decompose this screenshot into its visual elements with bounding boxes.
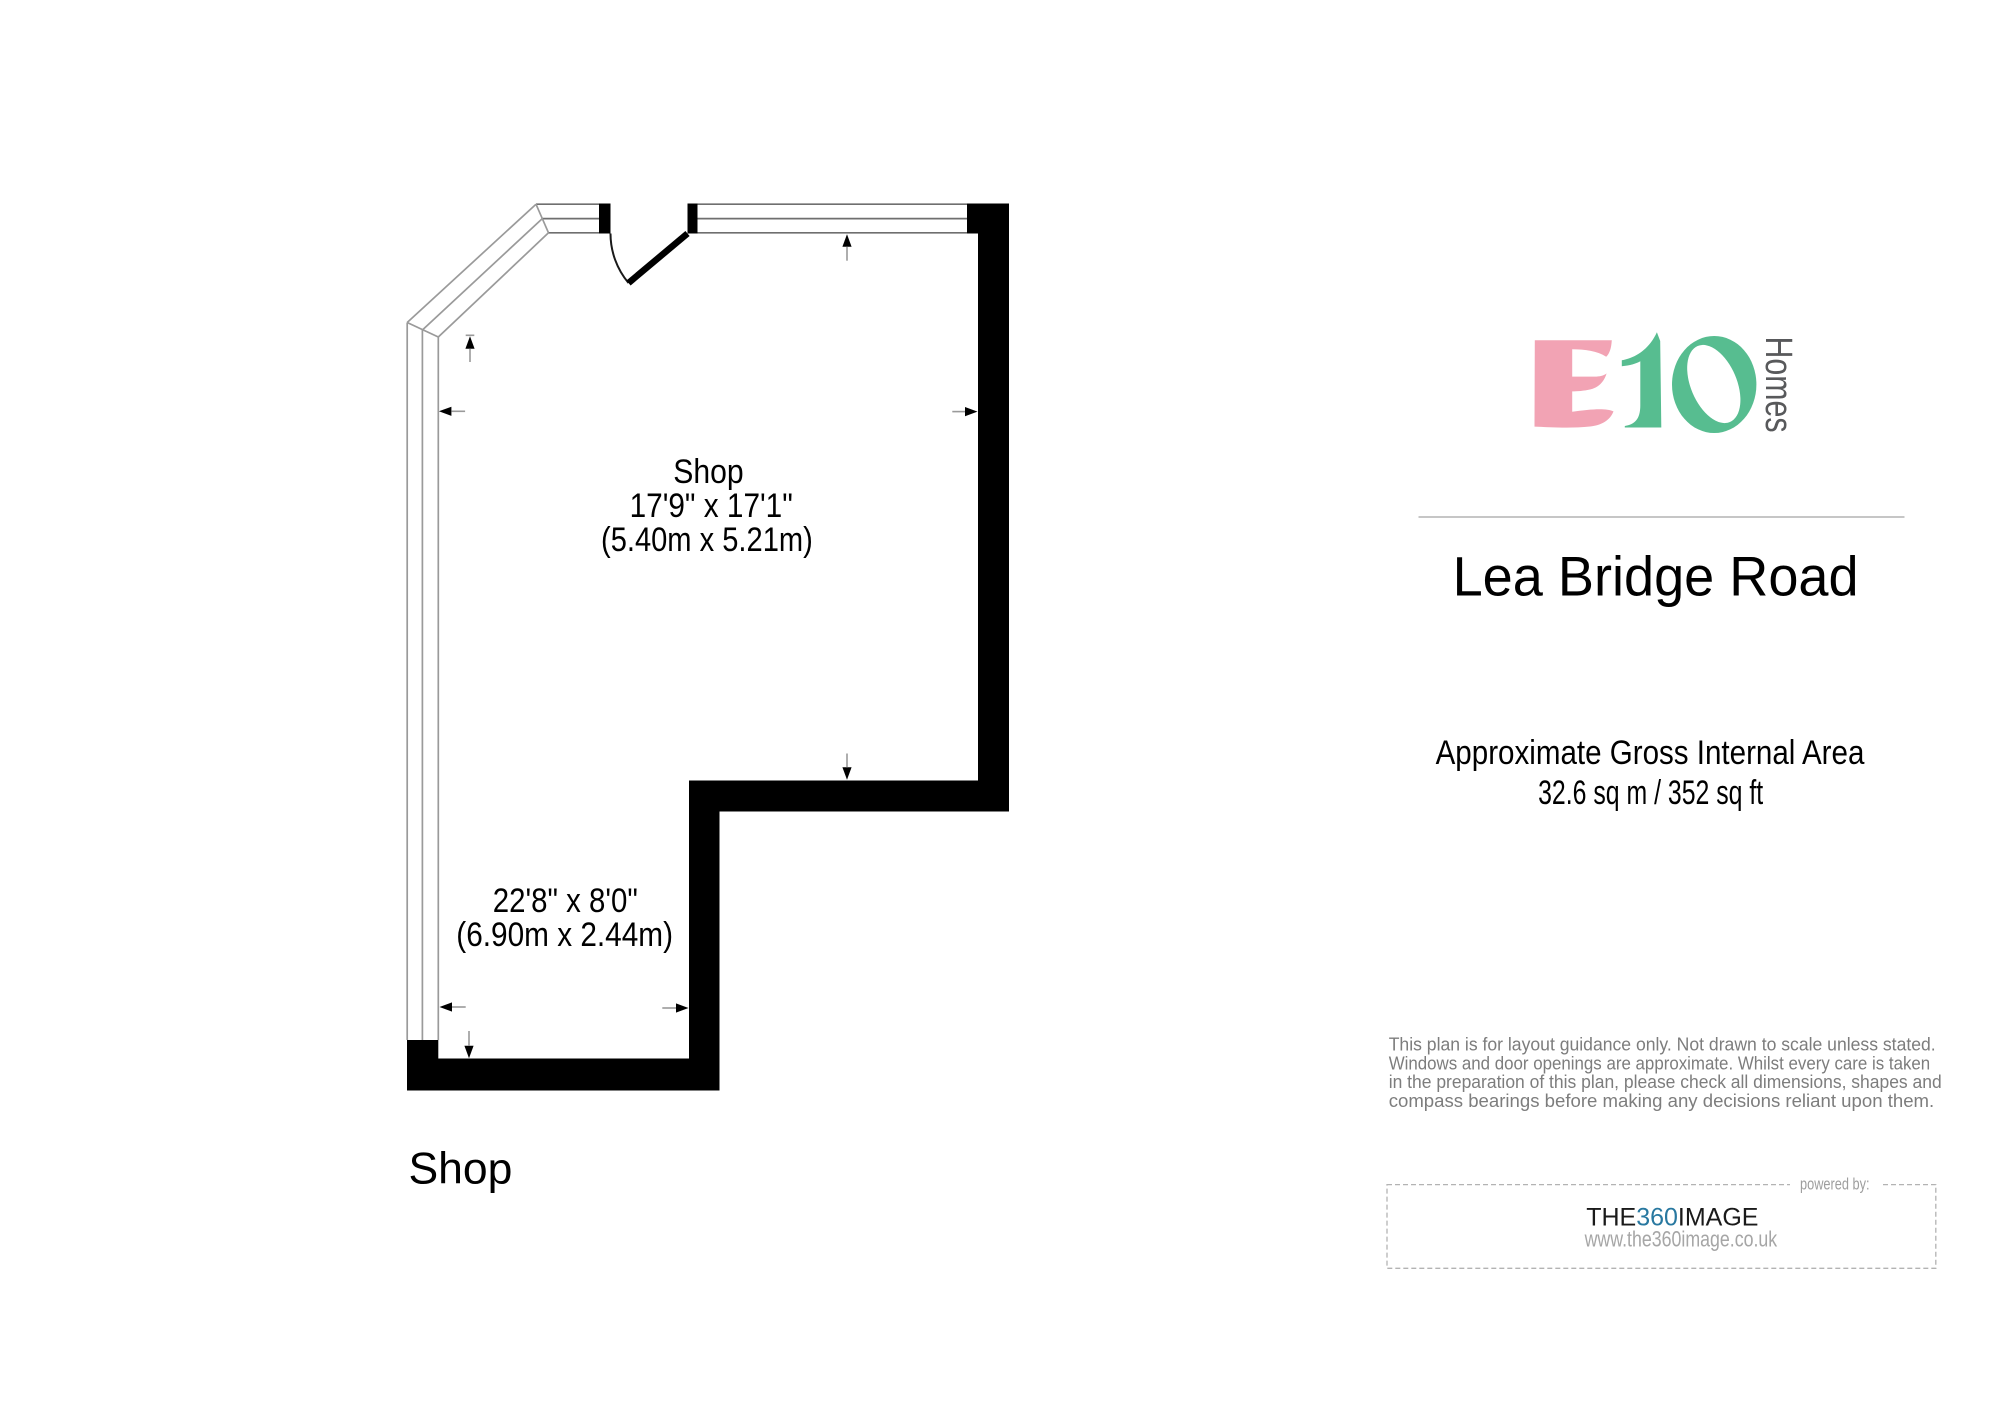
svg-text:17'9" x 17'1": 17'9" x 17'1" [630, 487, 793, 525]
svg-text:Homes: Homes [1757, 337, 1799, 433]
svg-text:Shop: Shop [409, 1145, 513, 1194]
svg-text:powered by:: powered by: [1800, 1175, 1870, 1194]
svg-text:Approximate Gross Internal Are: Approximate Gross Internal Area [1436, 734, 1865, 772]
svg-text:Shop: Shop [673, 453, 743, 491]
svg-text:compass bearings before making: compass bearings before making any decis… [1389, 1090, 1935, 1111]
svg-text:(5.40m x 5.21m): (5.40m x 5.21m) [601, 521, 813, 559]
svg-text:(6.90m x 2.44m): (6.90m x 2.44m) [456, 916, 673, 954]
svg-text:32.6 sq m / 352 sq ft: 32.6 sq m / 352 sq ft [1538, 774, 1764, 812]
svg-text:22'8" x 8'0": 22'8" x 8'0" [493, 882, 638, 920]
svg-text:Lea Bridge Road: Lea Bridge Road [1453, 546, 1859, 608]
svg-text:www.the360image.co.uk: www.the360image.co.uk [1584, 1227, 1778, 1252]
